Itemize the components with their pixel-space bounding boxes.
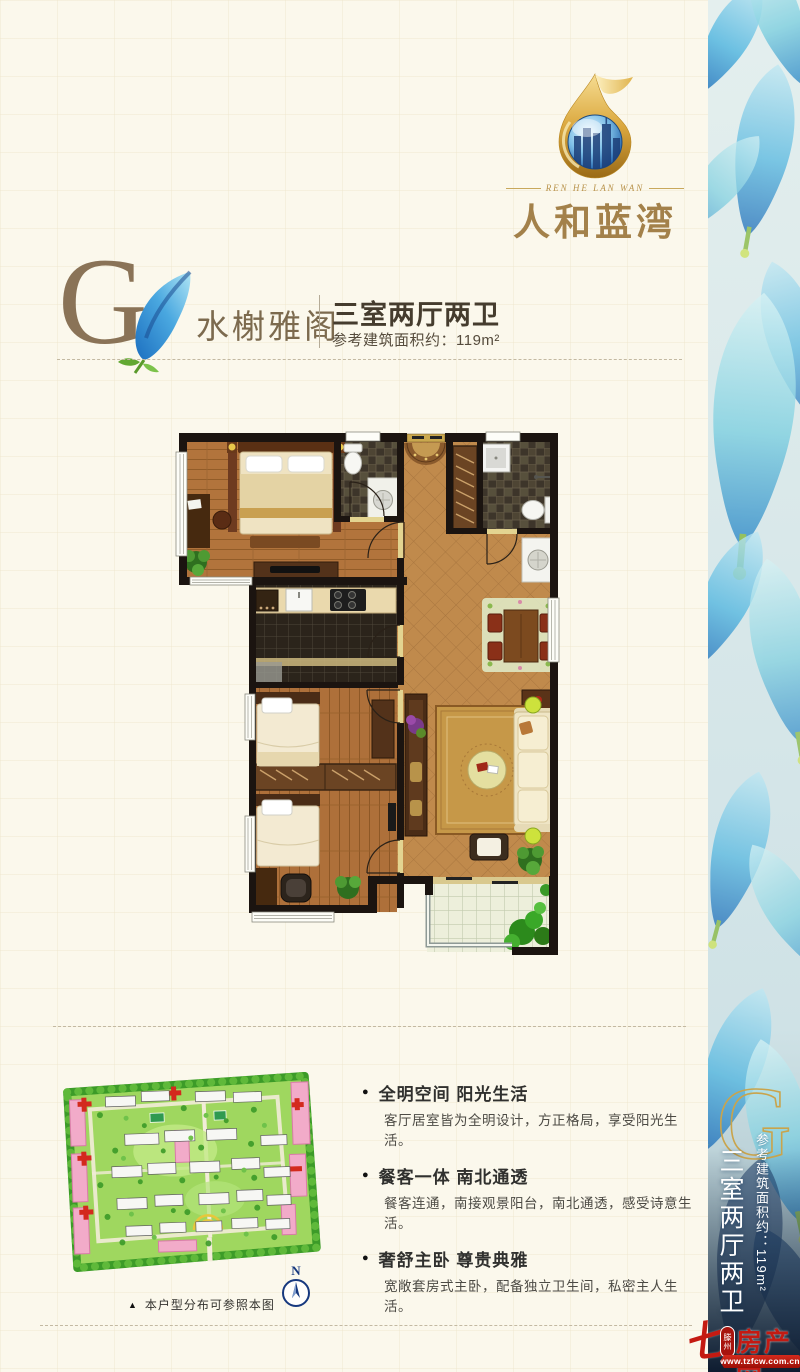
- bullet-icon: ●: [362, 1087, 370, 1098]
- site-plan-caption-text: 本户型分布可参照本图: [145, 1296, 275, 1313]
- site-plan-drawing: [56, 1072, 324, 1272]
- logo-chinese-text: 人和蓝湾: [500, 192, 690, 246]
- feature-title: 奢舒主卧 尊贵典雅: [379, 1246, 529, 1271]
- petal-sidebar: G 参考建筑面积约：119m² 三室两厅两卫: [708, 0, 800, 1372]
- site-watermark: 七 滕州 房产网 www.tzfcw.com.cn: [684, 1320, 800, 1372]
- floor-plan: [175, 430, 580, 970]
- watermark-city-badge: 滕州: [720, 1326, 735, 1358]
- unit-spec: 三室两厅两卫: [332, 293, 500, 332]
- feature-item: ● 餐客一体 南北通透 餐客连通，南接观景阳台，南北通透，感受诗意生活。: [362, 1163, 692, 1233]
- compass-north-label: N: [291, 1263, 301, 1278]
- feature-desc: 客厅居室皆为全明设计，方正格局，享受阳光生活。: [384, 1111, 692, 1150]
- title-divider: [319, 295, 320, 348]
- feature-desc: 宽敞套房式主卧，配备独立卫生间，私密主人生活。: [384, 1277, 692, 1316]
- blue-petal-icon: [110, 266, 200, 374]
- brochure-page: REN HE LAN WAN 人和蓝湾 G 水榭雅阁 三室两厅两卫 参考建筑面积…: [0, 0, 800, 1372]
- floor-plan-drawing: [175, 430, 580, 965]
- dashed-divider-middle: [53, 1026, 686, 1027]
- feature-title: 全明空间 阳光生活: [379, 1080, 529, 1105]
- brand-logo: REN HE LAN WAN 人和蓝湾: [500, 70, 690, 245]
- rule-left: [506, 188, 541, 189]
- dashed-divider-top: [57, 359, 682, 360]
- bullet-icon: ●: [362, 1170, 370, 1181]
- feature-title: 餐客一体 南北通透: [379, 1163, 529, 1188]
- bullet-icon: ●: [362, 1253, 370, 1264]
- triangle-marker-icon: ▲: [128, 1300, 138, 1310]
- sidebar-spec-label: 三室两厅两卫: [712, 1148, 748, 1316]
- feature-desc: 餐客连通，南接观景阳台，南北通透，感受诗意生活。: [384, 1194, 692, 1233]
- sidebar-area-label: 参考建筑面积约：119m²: [752, 1133, 771, 1292]
- watermark-url: www.tzfcw.com.cn: [720, 1355, 800, 1368]
- feature-item: ● 奢舒主卧 尊贵典雅 宽敞套房式主卧，配备独立卫生间，私密主人生活。: [362, 1246, 692, 1316]
- site-plan-caption: ▲ 本户型分布可参照本图: [128, 1296, 275, 1313]
- feature-list: ● 全明空间 阳光生活 客厅居室皆为全明设计，方正格局，享受阳光生活。 ● 餐客…: [362, 1080, 692, 1329]
- compass-icon: N: [278, 1262, 314, 1312]
- flame-globe-logo-icon: [545, 70, 645, 182]
- unit-area: 参考建筑面积约：119m²: [332, 329, 500, 350]
- site-plan-map: [56, 1072, 324, 1277]
- feature-item: ● 全明空间 阳光生活 客厅居室皆为全明设计，方正格局，享受阳光生活。: [362, 1080, 692, 1150]
- rule-right: [649, 188, 684, 189]
